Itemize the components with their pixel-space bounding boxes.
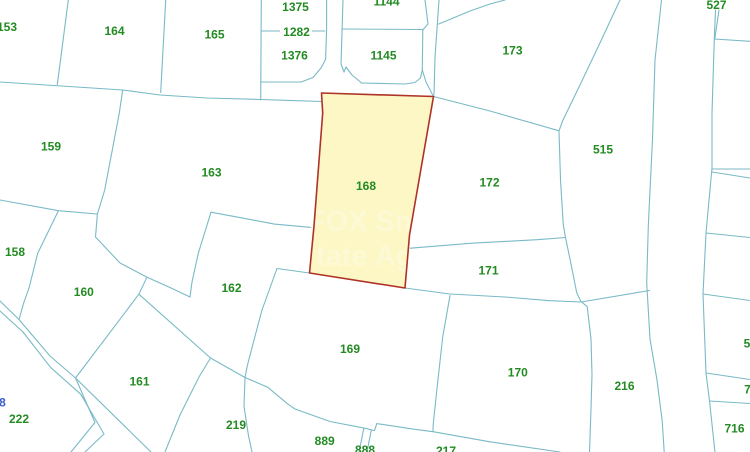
svg-text:160: 160 <box>74 285 94 299</box>
svg-text:888: 888 <box>355 443 375 452</box>
svg-text:FOX Sm: FOX Sm <box>308 206 421 238</box>
svg-text:163: 163 <box>201 166 221 180</box>
svg-text:527: 527 <box>706 0 726 12</box>
svg-text:5: 5 <box>744 337 750 351</box>
svg-text:tate Ag: tate Ag <box>316 241 413 273</box>
svg-text:165: 165 <box>204 28 224 42</box>
svg-text:171: 171 <box>478 264 498 278</box>
svg-text:1282: 1282 <box>283 25 310 39</box>
svg-text:515: 515 <box>593 143 613 157</box>
svg-text:153: 153 <box>0 20 17 34</box>
svg-text:161: 161 <box>129 375 149 389</box>
svg-text:1145: 1145 <box>370 48 396 62</box>
svg-text:222: 222 <box>9 412 29 426</box>
svg-text:159: 159 <box>41 140 61 154</box>
svg-text:217: 217 <box>436 444 456 452</box>
svg-text:1376: 1376 <box>281 49 308 63</box>
svg-text:216: 216 <box>614 379 634 393</box>
svg-text:162: 162 <box>221 281 241 295</box>
svg-text:164: 164 <box>104 24 124 38</box>
svg-text:8: 8 <box>0 396 6 410</box>
svg-text:170: 170 <box>508 366 528 380</box>
svg-text:716: 716 <box>724 421 744 435</box>
svg-text:158: 158 <box>5 245 25 259</box>
svg-text:1375: 1375 <box>282 0 309 14</box>
svg-text:219: 219 <box>226 418 246 432</box>
svg-text:168: 168 <box>356 179 376 193</box>
svg-text:173: 173 <box>502 44 522 58</box>
svg-text:7: 7 <box>744 383 750 397</box>
svg-text:172: 172 <box>479 176 499 190</box>
svg-text:889: 889 <box>315 434 335 448</box>
svg-text:1144: 1144 <box>373 0 399 9</box>
svg-text:169: 169 <box>340 342 360 356</box>
